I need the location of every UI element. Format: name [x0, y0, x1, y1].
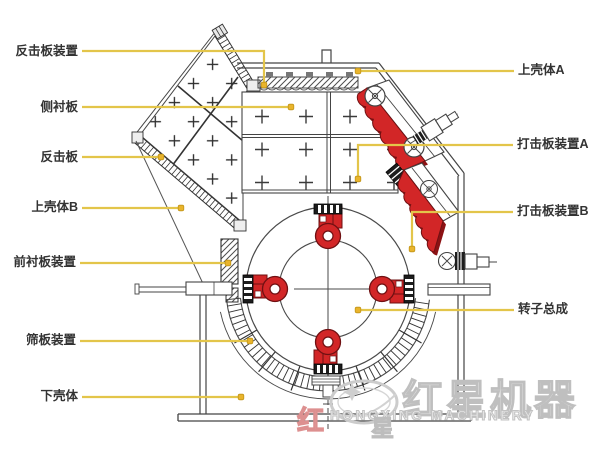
top-liner-strip — [258, 72, 358, 90]
part-label-left-4: 前衬板装置 — [13, 255, 76, 270]
right-bracket — [428, 284, 490, 295]
watermark-logo — [326, 376, 406, 432]
part-label-left-1: 侧衬板 — [40, 100, 78, 115]
leader-dot-right-1 — [355, 176, 361, 182]
leader-dot-left-1 — [288, 104, 294, 110]
watermark-fragment-gray: 星 — [371, 409, 394, 443]
leader-dot-left-6 — [238, 394, 244, 400]
part-label-left-0: 反击板装置 — [15, 44, 78, 59]
leader-dot-left-0 — [261, 82, 267, 88]
part-label-right-2: 打击板装置B — [517, 204, 589, 219]
part-label-left-3: 上壳体B — [31, 200, 78, 215]
adjusting-rod-b — [438, 252, 497, 270]
leader-dot-left-5 — [247, 338, 253, 344]
watermark-fragment-red: 红 — [297, 399, 324, 438]
leader-dot-left-2 — [158, 154, 164, 160]
part-label-left-5: 筛板装置 — [26, 333, 76, 348]
part-label-right-0: 上壳体A — [518, 63, 565, 78]
leader-dot-right-0 — [355, 68, 361, 74]
leader-dot-left-3 — [178, 205, 184, 211]
part-label-right-1: 打击板装置A — [517, 137, 589, 152]
leader-dot-right-2 — [409, 246, 415, 252]
watermark-brand-en: HONGXING MACHINERY — [330, 408, 535, 423]
part-label-left-2: 反击板 — [40, 150, 78, 165]
left-bracket — [135, 282, 232, 295]
part-label-right-3: 转子总成 — [518, 302, 568, 317]
part-label-left-6: 下壳体 — [40, 389, 78, 404]
leader-dot-right-3 — [355, 307, 361, 313]
leader-dot-left-4 — [225, 260, 231, 266]
diagram-stage: 红星机器 HONGXING MACHINERY 红 星 反击板装置侧衬板反击板上… — [0, 0, 600, 450]
